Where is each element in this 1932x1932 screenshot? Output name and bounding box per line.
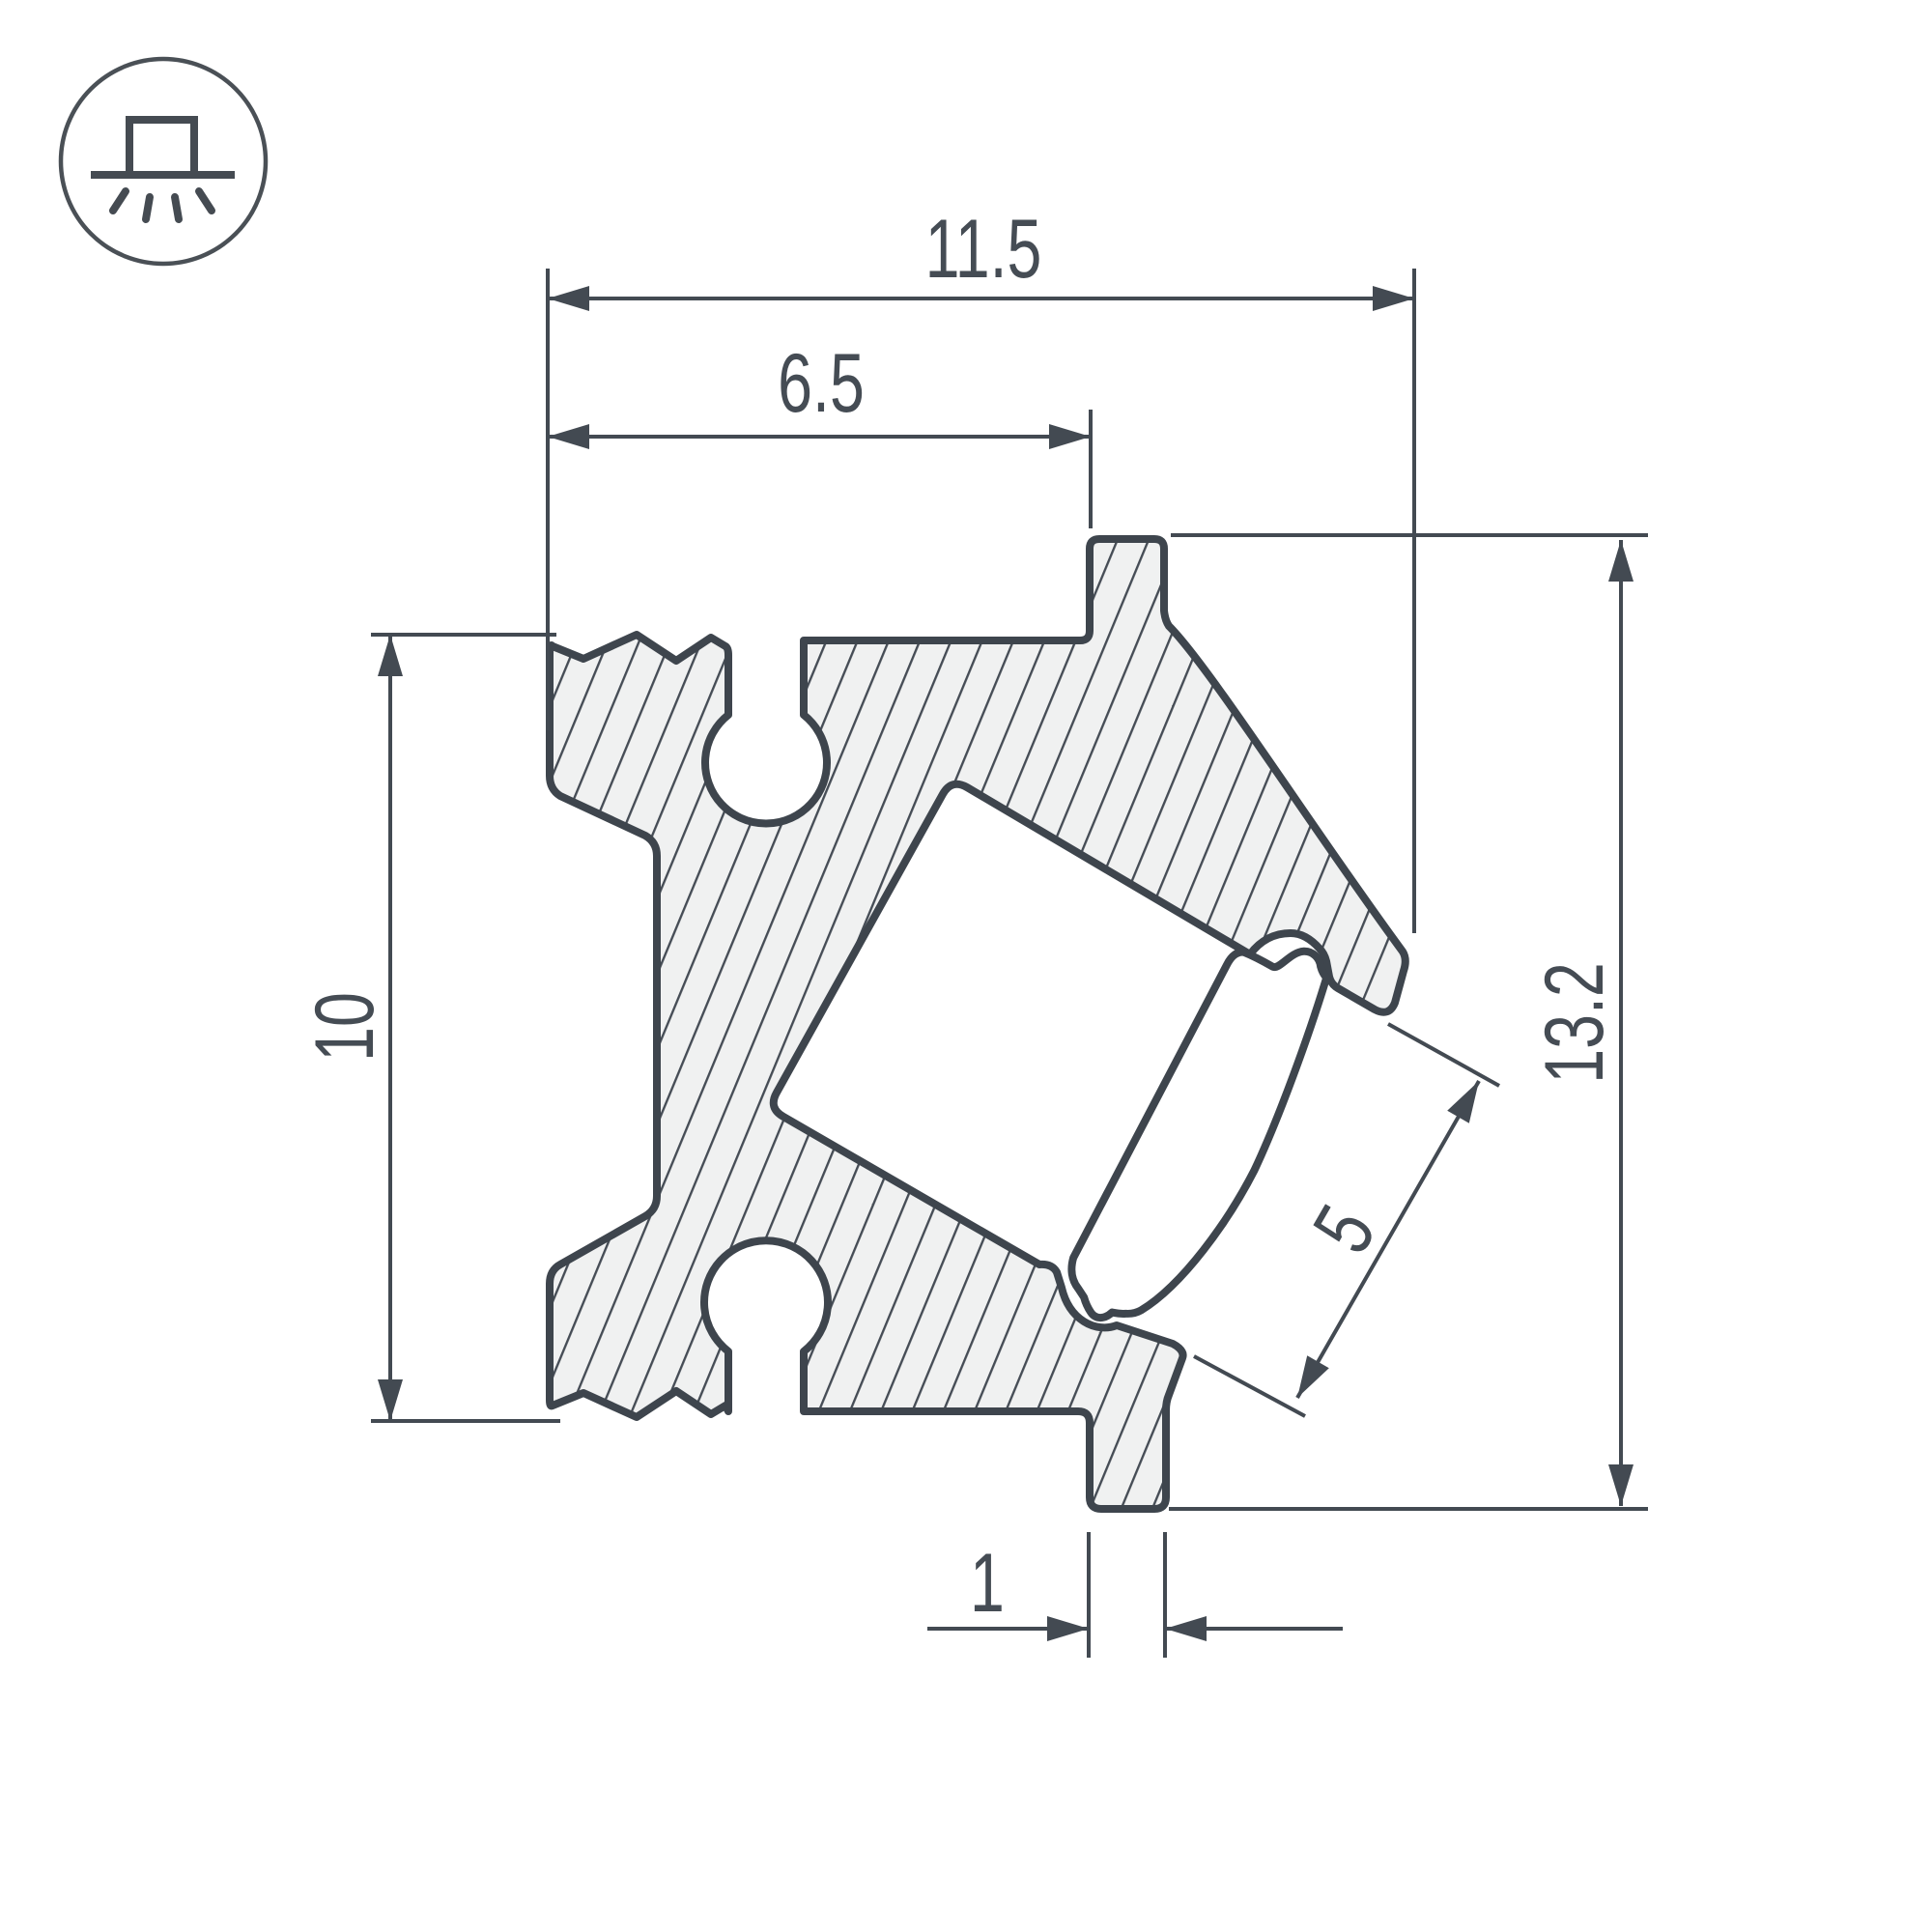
svg-text:10: 10 [298, 992, 391, 1062]
svg-text:6.5: 6.5 [778, 337, 865, 430]
svg-text:1: 1 [970, 1537, 1005, 1630]
svg-text:13.2: 13.2 [1528, 962, 1621, 1084]
svg-text:11.5: 11.5 [925, 203, 1042, 296]
